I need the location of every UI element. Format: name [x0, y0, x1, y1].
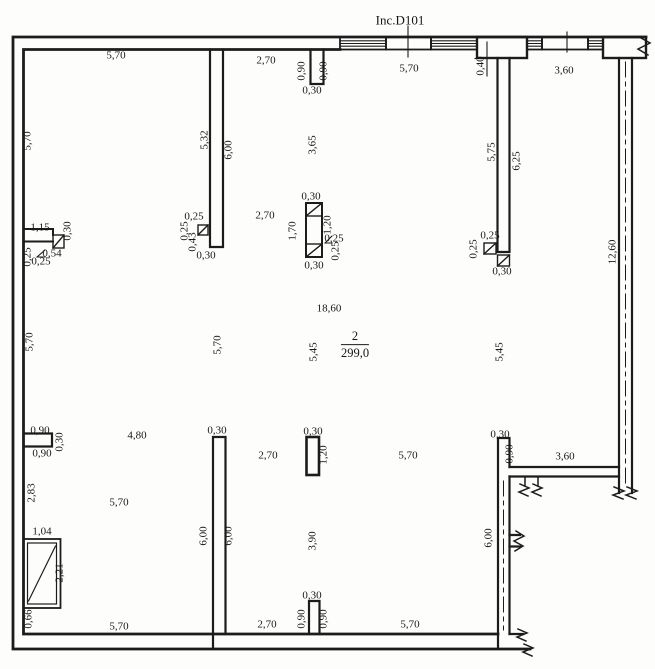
dimension-label: 1,04 [32, 527, 51, 538]
dimension-label: 0,30 [302, 591, 321, 602]
dimension-label: 1,15 [30, 223, 49, 234]
dimension-label: 3,60 [554, 66, 573, 77]
dimension-label: 0,30 [301, 192, 320, 203]
dimension-label: 6,00 [484, 528, 495, 547]
dimension-label: 5,75 [487, 142, 498, 161]
entrance-title: Inc.D101 [376, 14, 425, 27]
dimension-label: 5,45 [495, 342, 506, 361]
dimension-label: 2,70 [258, 451, 277, 462]
dimension-label: 0,30 [207, 426, 226, 437]
dimension-label: 1,70 [288, 221, 299, 240]
dimension-label: 0,30 [304, 261, 323, 272]
dimension-label: 0,30 [196, 251, 215, 262]
dimension-label: 1,20 [319, 445, 330, 464]
dimension-label: 5,70 [399, 64, 418, 75]
dimension-label: 0,30 [303, 427, 322, 438]
dimension-label: 5,70 [213, 335, 224, 354]
dimension-label: 0,90 [505, 444, 516, 463]
dimension-label: 0,90 [32, 449, 51, 460]
dimension-label: 2,21 [55, 563, 66, 582]
room-area: 299,0 [341, 346, 369, 361]
dimension-label: 5,70 [109, 622, 128, 633]
dimension-label: 5,70 [23, 131, 34, 150]
dimension-label: 0,30 [302, 86, 321, 97]
dimension-label: 0,30 [63, 221, 74, 240]
dimension-label: 5,70 [25, 332, 36, 351]
dimension-label: 0,66 [24, 609, 35, 628]
dimension-label: 0,25 [469, 239, 480, 258]
dimension-label: 5,45 [309, 342, 320, 361]
dimension-label: 18,60 [317, 304, 342, 315]
dimension-label: 2,83 [27, 483, 38, 502]
dimension-label: 0,90 [319, 609, 330, 628]
dimension-label: 0,30 [55, 432, 66, 451]
dimension-label: 5,70 [109, 498, 128, 509]
dimension-label: 0,30 [490, 430, 509, 441]
dimension-label: 5,70 [400, 620, 419, 631]
dimension-label: 5,70 [106, 51, 125, 62]
dimension-label: 3,65 [308, 135, 319, 154]
dimension-label: 3,90 [308, 531, 319, 550]
dimension-label-layer: Inc.D101 2 299,0 5,702,700,900,900,305,7… [0, 0, 655, 669]
dimension-label: 6,00 [224, 140, 235, 159]
dimension-label: 0,90 [297, 61, 308, 80]
dimension-label: 4,80 [127, 431, 146, 442]
dimension-label: 0,40 [476, 56, 487, 75]
dimension-label: 2,70 [256, 56, 275, 67]
dimension-label: 0,90 [319, 61, 330, 80]
dimension-label: 2,70 [257, 620, 276, 631]
dimension-label: 6,25 [512, 151, 523, 170]
dimension-label: 0,25 [31, 257, 50, 268]
dimension-label: 0,90 [297, 609, 308, 628]
dimension-label: 0,25 [331, 241, 342, 260]
dimension-label: 5,32 [200, 130, 211, 149]
dimension-label: 0,30 [492, 267, 511, 278]
dimension-label: 6,00 [199, 526, 210, 545]
dimension-label: 12,60 [608, 240, 619, 265]
dimension-label: 5,70 [398, 451, 417, 462]
room-number: 2 [341, 329, 369, 345]
dimension-label: 6,00 [224, 526, 235, 545]
dimension-label: 0,25 [480, 231, 499, 242]
dimension-label: 0,90 [30, 426, 49, 437]
floor-plan-canvas: Inc.D101 2 299,0 5,702,700,900,900,305,7… [0, 0, 655, 669]
dimension-label: 3,60 [555, 452, 574, 463]
dimension-label: 2,70 [255, 211, 274, 222]
room-label: 2 299,0 [341, 329, 369, 361]
